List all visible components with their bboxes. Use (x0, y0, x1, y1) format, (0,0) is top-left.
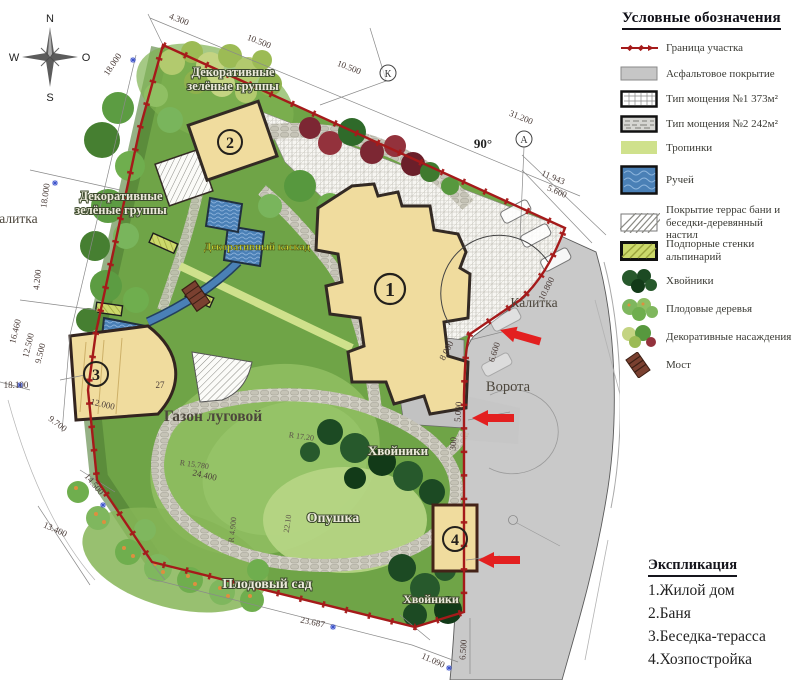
svg-text:10.500: 10.500 (336, 58, 363, 76)
stream-icon (620, 165, 660, 195)
fruit-tree-icon (620, 296, 660, 322)
marker-k: К (385, 69, 392, 80)
legend-item: Плодовые деревья (620, 296, 794, 322)
svg-text:зелёные группы: зелёные группы (75, 203, 167, 217)
marker-a: А (520, 135, 528, 146)
svg-text:300: 300 (448, 436, 459, 451)
explication-item-gazebo: 3.Беседка-терасса (648, 627, 766, 646)
ornamental-icon (620, 324, 660, 350)
paving-type1-icon (620, 90, 660, 108)
explication-item-shed: 4.Хозпостройка (648, 650, 766, 669)
svg-text:11.090: 11.090 (420, 651, 447, 670)
svg-text:зелёные группы: зелёные группы (187, 79, 279, 93)
svg-text:4.200: 4.200 (31, 269, 43, 291)
explication-panel: Экспликация 1.Жилой дом 2.Баня 3.Беседка… (648, 556, 766, 669)
svg-text:27: 27 (156, 380, 166, 390)
svg-text:10.500: 10.500 (246, 32, 273, 50)
svg-text:18.000: 18.000 (101, 51, 123, 78)
svg-text:16.460: 16.460 (7, 318, 23, 345)
legend-item: Мост (620, 352, 794, 378)
building-gazebo (70, 326, 176, 420)
legend-item: Граница участка (620, 42, 794, 55)
bridge-icon (620, 352, 660, 378)
legend-item: Тип мощения №2 242м² (620, 115, 794, 133)
label-deco-groups-left: Декоративные (79, 189, 163, 203)
label-angle: 90° (474, 136, 492, 151)
svg-text:4.300: 4.300 (168, 11, 191, 28)
boundary-line-icon (620, 42, 660, 54)
svg-text:5.600: 5.600 (546, 183, 569, 200)
svg-text:9.700: 9.700 (47, 414, 70, 434)
legend-item: Тропинки (620, 140, 794, 156)
footpath-icon (620, 140, 660, 156)
survey-markers: К А (380, 65, 532, 147)
asphalt-icon (620, 66, 660, 82)
label-glade: Опушка (307, 511, 360, 526)
label-lawn: Газон луговой (164, 408, 262, 425)
label-conifers-bottom: Хвойники (403, 592, 459, 606)
paving-type2-icon (620, 115, 660, 133)
label-deco-groups-top: Декоративные (191, 65, 275, 79)
explication-item-bathhouse: 2.Баня (648, 604, 766, 623)
compass-north: N (46, 13, 54, 25)
explication-item-house: 1.Жилой дом (648, 581, 766, 600)
compass-south: S (46, 92, 53, 104)
label-gate-right: Калитка (510, 295, 557, 310)
number-gazebo: 3 (92, 367, 100, 384)
number-shed: 4 (451, 532, 459, 549)
svg-text:5.000: 5.000 (452, 401, 463, 422)
retaining-wall-icon (620, 241, 660, 261)
number-house: 1 (385, 279, 395, 301)
label-orchard: Плодовый сад (222, 577, 312, 592)
site-plan-page: N S W O 4.300 10.500 10.500 31.200 11.94… (0, 0, 800, 680)
svg-text:6.500: 6.500 (457, 639, 468, 660)
legend-item: Тип мощения №1 373м² (620, 90, 794, 108)
explication-title: Экспликация (648, 557, 737, 577)
label-conifers-mid: Хвойники (368, 443, 429, 458)
compass-west: W (9, 52, 20, 64)
svg-text:23.687: 23.687 (299, 615, 326, 630)
number-bathhouse: 2 (226, 135, 234, 152)
legend-item: Декоративные насаждения (620, 324, 794, 350)
legend-item: Ручей (620, 165, 794, 195)
compass-rose: N S W O (9, 13, 91, 104)
svg-text:18.000: 18.000 (38, 182, 51, 208)
legend-title: Условные обозначения (622, 10, 781, 30)
legend-item: Хвойники (620, 268, 794, 294)
svg-text:18.100: 18.100 (4, 380, 29, 390)
svg-text:31.200: 31.200 (508, 108, 535, 127)
label-main-gate: Ворота (486, 379, 531, 395)
svg-text:9.500: 9.500 (33, 342, 48, 365)
legend-item: Покрытие террас бани и беседки-деревянны… (620, 204, 794, 242)
legend-item: Подпорные стенки альпинарий (620, 238, 794, 263)
label-cascade: Декоративный каскад (204, 242, 311, 253)
conifer-icon (620, 268, 660, 294)
compass-east: O (82, 52, 91, 64)
legend-item: Асфальтовое покрытие (620, 66, 794, 82)
label-gate-left: Калитка (0, 211, 38, 226)
site-plan-drawing: N S W O 4.300 10.500 10.500 31.200 11.94… (0, 0, 620, 680)
deck-icon (620, 213, 660, 233)
